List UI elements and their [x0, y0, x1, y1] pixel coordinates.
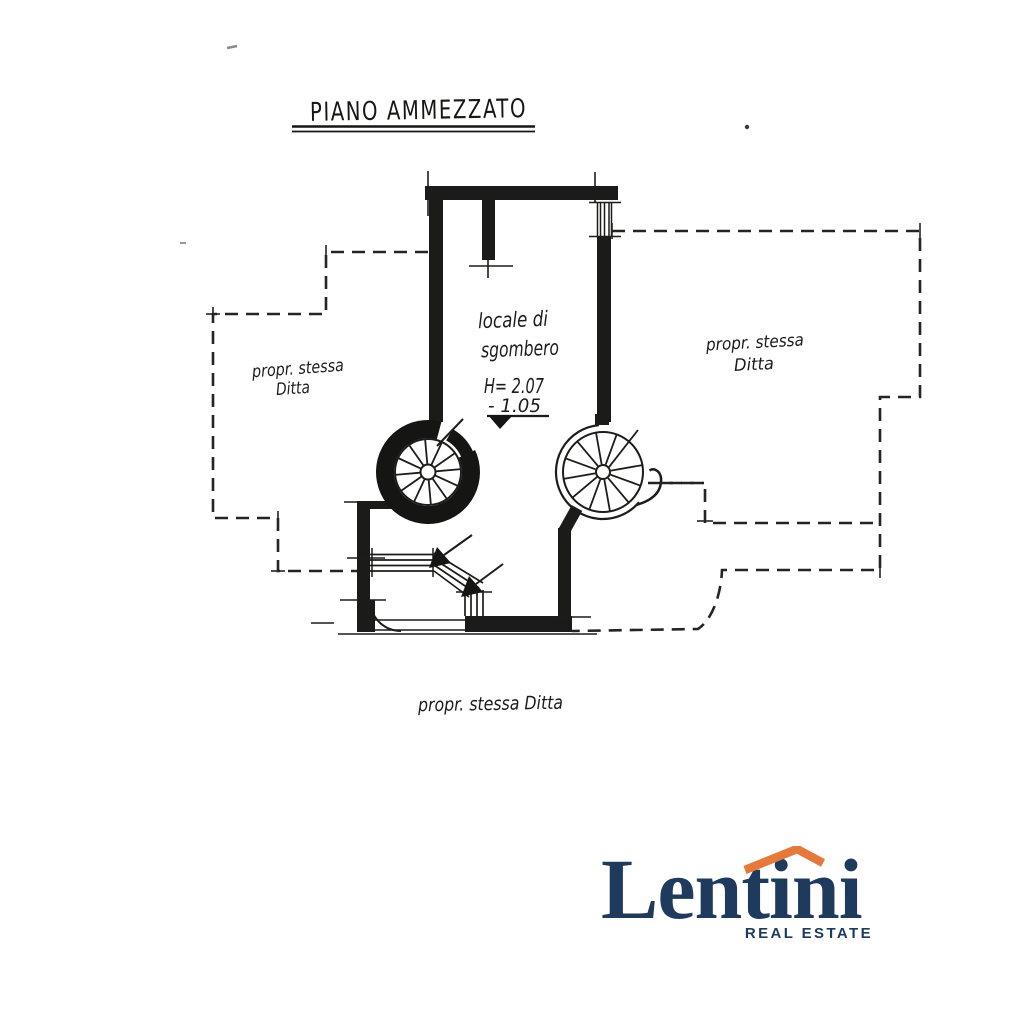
- roof-icon: [741, 846, 827, 874]
- right-spiral-bottom-stub: [563, 508, 577, 533]
- property-boundary-right-dashed: [572, 231, 920, 631]
- stair-direction-arrows: [429, 535, 503, 597]
- spiral-stair-right: [556, 425, 661, 519]
- adjacent-left-label-line2: Ditta: [275, 378, 310, 400]
- spiral-stair-left: [376, 419, 480, 524]
- room-label-line1: locale di: [478, 307, 549, 333]
- adjacent-right-label-line1: propr. stessa: [705, 330, 805, 355]
- title-underline: [292, 127, 535, 132]
- plan-title: PIANO AMMEZZATO: [310, 94, 527, 128]
- scan-specks: [180, 46, 749, 243]
- adjacent-right-label-line2: Ditta: [733, 354, 774, 376]
- room-label-line2: sgombero: [481, 336, 560, 363]
- brand-row: Lentini: [601, 846, 877, 932]
- property-boundary-left-dashed: [213, 252, 428, 571]
- floor-plan-page: PIANO AMMEZZATO: [0, 0, 1024, 1024]
- adjacent-bottom-label: propr. stessa Ditta: [417, 693, 563, 717]
- level-note: - 1.05: [488, 395, 541, 417]
- level-marker: [487, 415, 549, 429]
- brand-logo: Lentini REAL ESTATE: [601, 846, 877, 946]
